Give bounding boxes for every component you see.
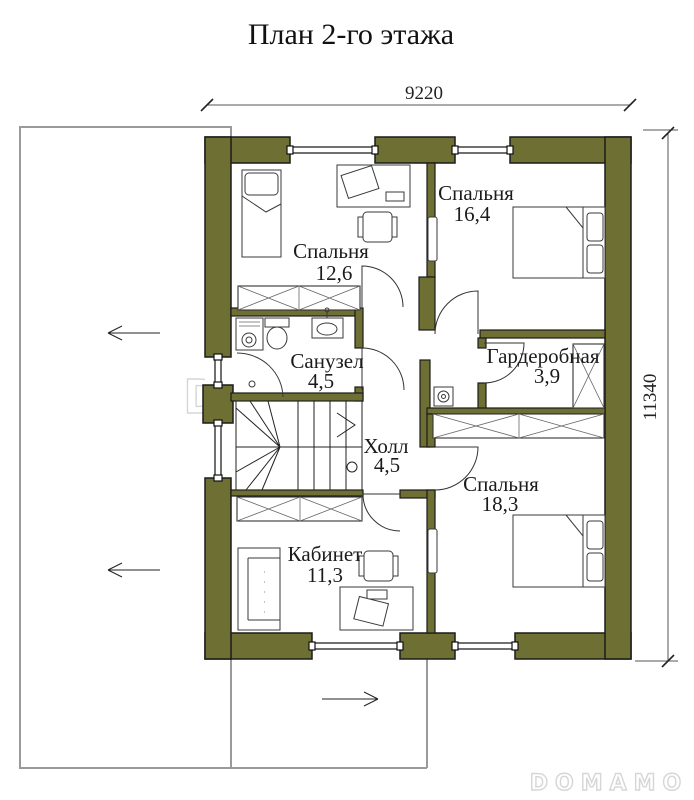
direction-arrow-left-bottom [108,563,160,577]
area-bedroom2: 16,4 [454,202,491,226]
watermark-corner: DOMAMO [530,771,688,796]
area-hall: 4,5 [374,453,400,477]
label-bedroom1: Спальня [293,239,369,263]
window-icon-top-right [452,146,513,154]
closet-bedroom3 [433,414,604,438]
area-wardrobe: 3,9 [534,364,560,388]
desk-icon-bedroom1 [337,165,410,207]
chair-icon-office [359,551,398,581]
radiator-icon-bedroom2 [428,217,437,261]
area-office: 11,3 [307,563,343,587]
window-icon-top-left [287,146,378,154]
boiler-icon [434,387,453,406]
washing-machine-icon [236,318,263,350]
double-bed-icon-bedroom3 [513,515,605,587]
double-bed-icon-bedroom2 [513,207,605,278]
toilet-icon [265,318,289,349]
single-bed-icon [242,170,281,257]
window-icon-bottom-right [452,642,518,650]
area-bathroom: 4,5 [308,369,334,393]
window-icon-left-lower [214,420,222,481]
sofa-icon [238,548,280,630]
closet-office [237,497,362,521]
radiator-icon-bedroom3 [428,529,437,573]
dimension-right: 11340 [635,127,678,667]
area-bedroom1: 12,6 [316,261,353,285]
window-icon-bottom-left [309,642,403,650]
floor-plan-figure: План 2-го этажа DOMAMO [0,0,694,800]
dimension-top: 9220 [201,83,636,111]
dimension-top-value: 9220 [405,83,443,104]
area-bedroom3: 18,3 [482,492,519,516]
closet-bedroom1 [238,286,360,310]
chair-icon-bedroom1 [358,212,397,242]
direction-arrow-left-top [108,326,160,340]
desk-icon-office [340,587,413,630]
page-title: План 2-го этажа [248,18,454,51]
dimension-right-value: 11340 [640,374,661,421]
direction-arrow-entrance [322,692,378,706]
window-icon-left-upper [214,354,222,388]
floor-plan-page: План 2-го этажа DOMAMO [0,0,694,800]
